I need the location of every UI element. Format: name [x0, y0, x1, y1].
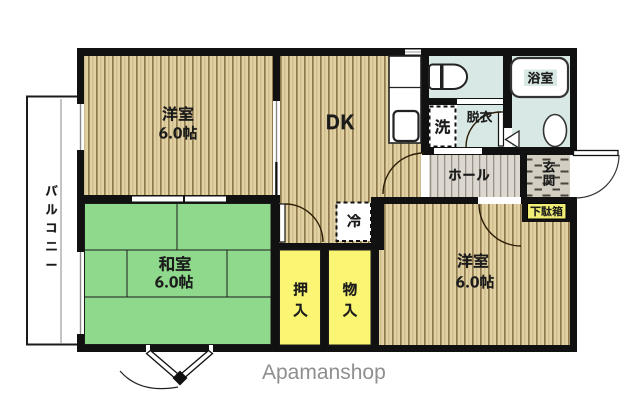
svg-text:Apamanshop: Apamanshop	[262, 361, 386, 384]
